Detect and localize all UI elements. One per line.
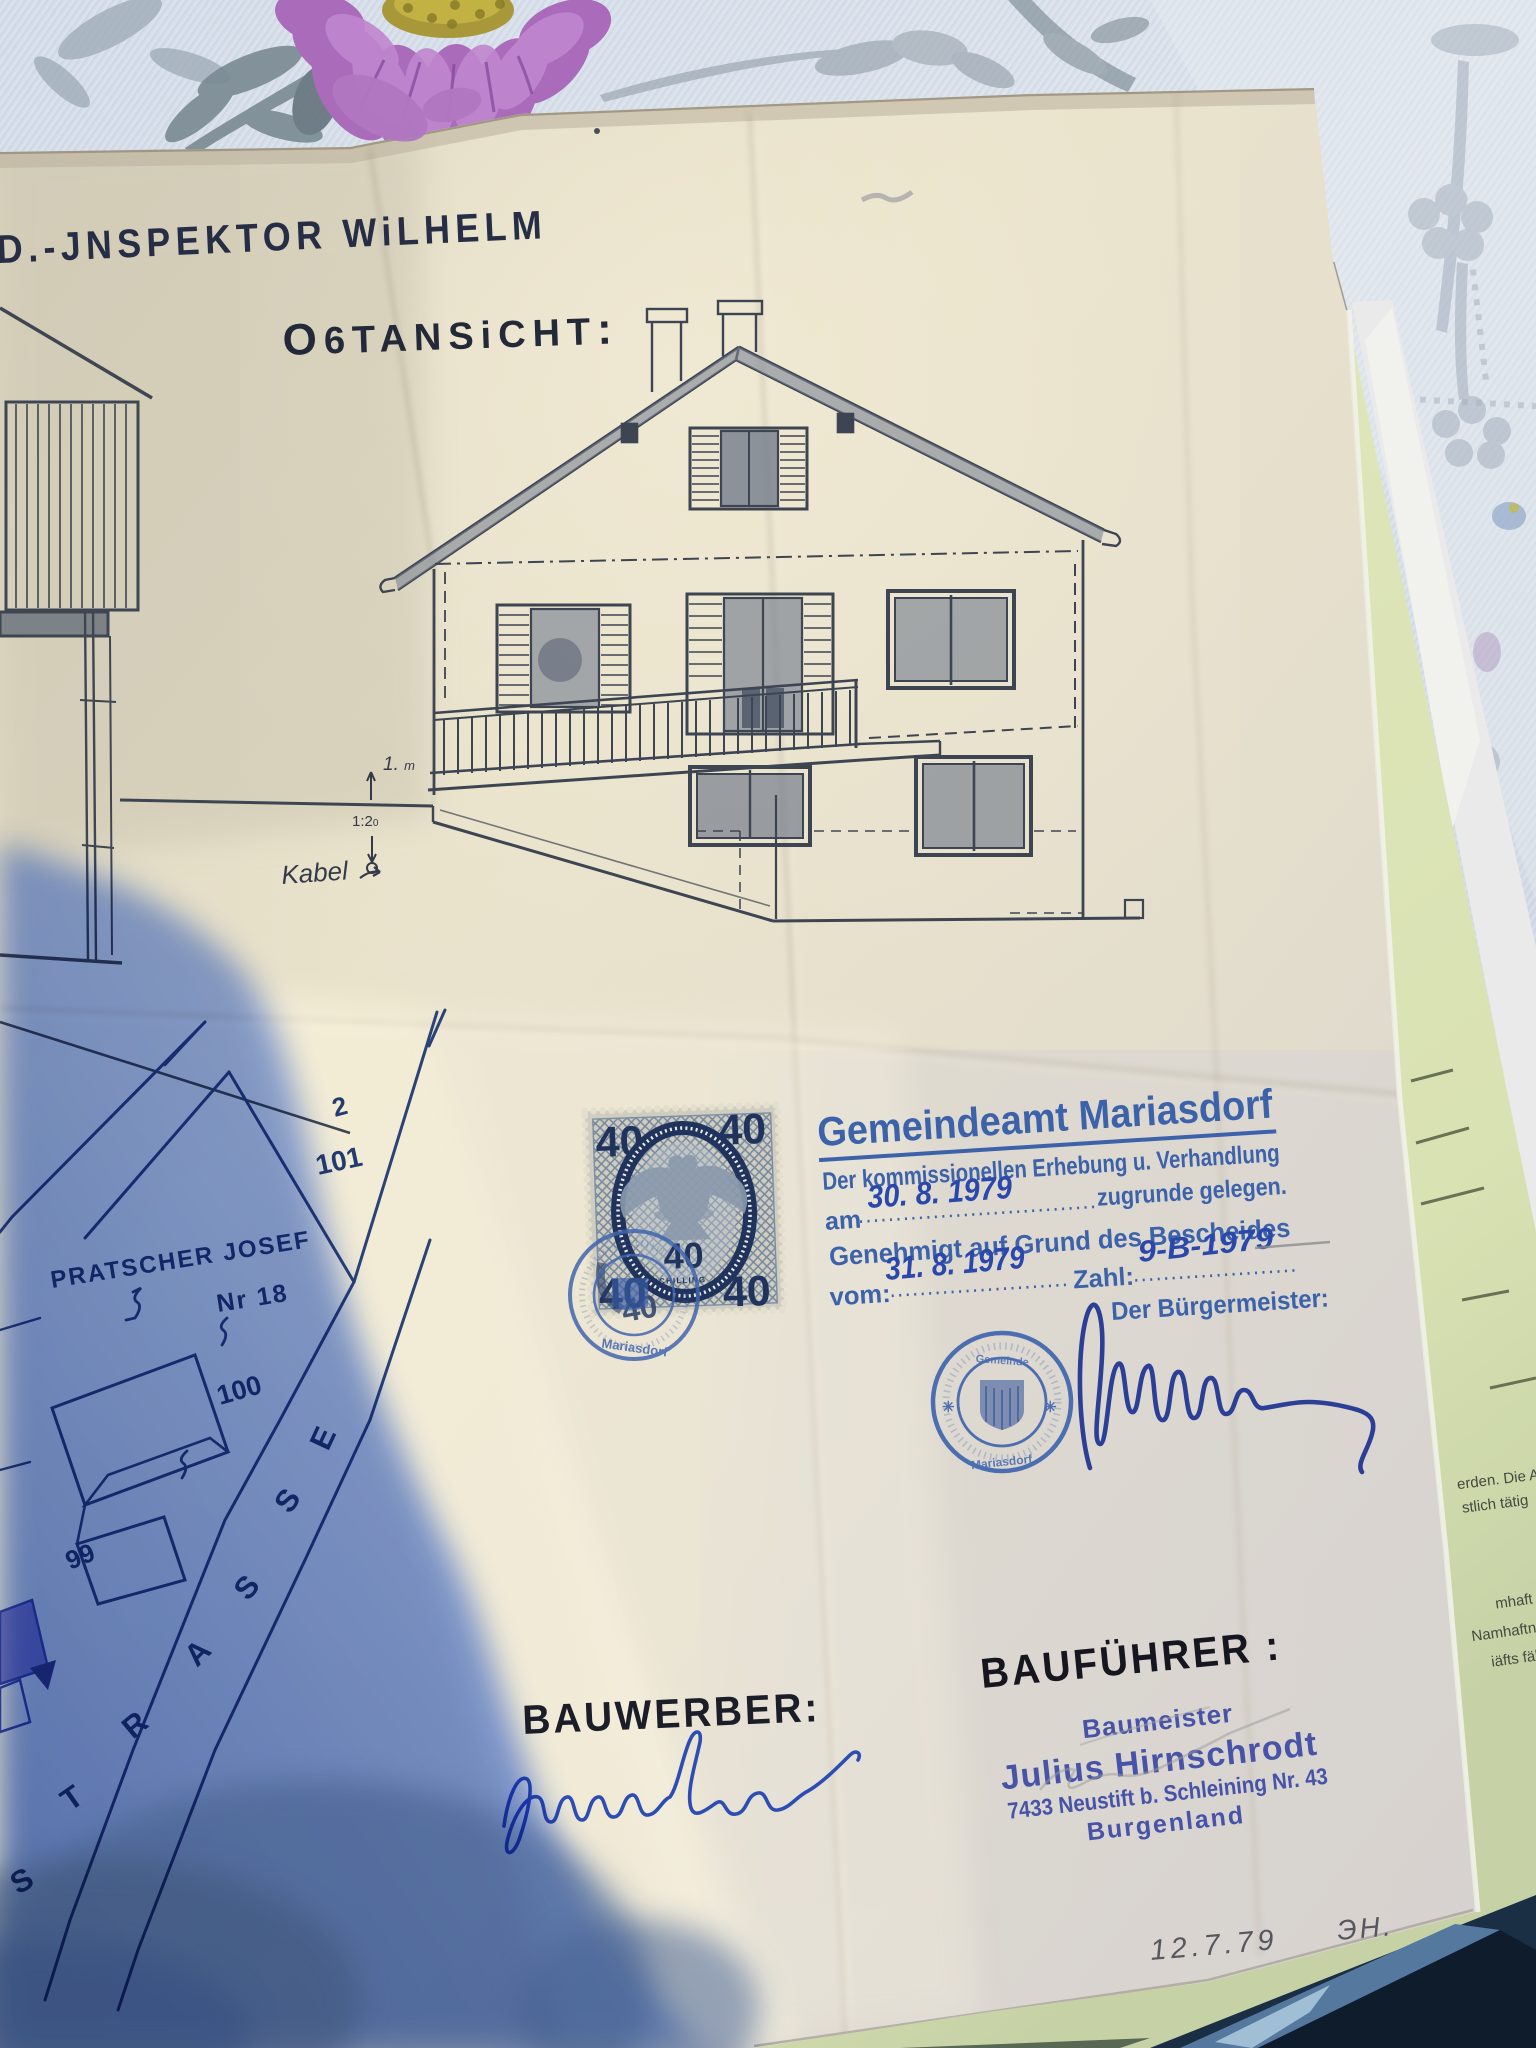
svg-text:ЭН.: ЭН. <box>1336 1910 1395 1946</box>
svg-text:Zahl:: Zahl: <box>1072 1263 1135 1295</box>
svg-text:1. m: 1. m <box>383 754 415 775</box>
svg-text:vom:: vom: <box>829 1280 892 1312</box>
svg-text:✳: ✳ <box>942 1399 955 1416</box>
svg-text:am: am <box>824 1206 862 1236</box>
svg-text:Kabel: Kabel <box>280 855 350 890</box>
svg-text:✳: ✳ <box>1044 1399 1057 1416</box>
